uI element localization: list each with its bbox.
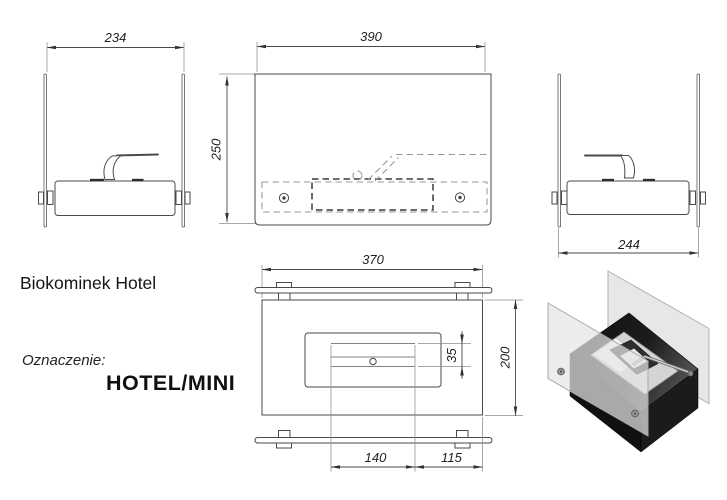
- designation-value: HOTEL/MINI: [106, 371, 235, 396]
- technical-drawing-sheet: 234: [0, 0, 727, 500]
- side-view-right: 244: [552, 74, 706, 258]
- dim-label-opening-width: 140: [365, 450, 387, 465]
- glass-panel-left: [558, 74, 561, 227]
- dim-label-side-left-width: 234: [104, 30, 127, 45]
- top-view: 370: [255, 252, 523, 472]
- dim-label-slot-height: 35: [444, 348, 459, 363]
- dim-slot-height: 35: [418, 332, 471, 379]
- dim-label-top-width: 370: [362, 252, 384, 267]
- burner-body: [55, 180, 175, 216]
- glass-panel-right: [697, 74, 700, 227]
- hidden-lever-outline: [353, 155, 490, 182]
- dim-label-front-height: 250: [209, 138, 224, 161]
- hidden-burner-outline: [262, 179, 487, 212]
- glass-panel-left: [44, 74, 47, 227]
- glass-shelf-bottom: [255, 431, 492, 449]
- dim-label-opening-to-edge: 115: [441, 450, 462, 465]
- front-view: 390 250: [209, 29, 492, 225]
- dim-label-top-depth: 200: [498, 346, 513, 369]
- mounting-screw-left: [279, 193, 288, 202]
- product-3d-render: [548, 271, 709, 452]
- mounting-screw-right: [455, 193, 464, 202]
- drawing-canvas: 234: [0, 0, 727, 500]
- glass-shelf-top: [255, 283, 492, 301]
- dim-front-height: 250: [209, 74, 257, 224]
- side-view-left: 234: [39, 30, 191, 227]
- dim-label-side-right-width: 244: [617, 237, 640, 252]
- control-lever: [104, 155, 158, 180]
- dim-label-front-width: 390: [360, 29, 382, 44]
- control-lever: [585, 156, 635, 179]
- designation-label: Oznaczenie:: [22, 352, 105, 369]
- dim-top-depth: 200: [485, 300, 524, 416]
- glass-front-panel: [255, 74, 491, 225]
- burner-body: [567, 180, 689, 215]
- product-title: Biokominek Hotel: [20, 273, 156, 294]
- dim-side-left-width: 234: [47, 30, 184, 72]
- dim-front-width: 390: [257, 29, 485, 72]
- glass-panel-right: [182, 74, 185, 227]
- dim-side-right-width: 244: [559, 228, 699, 258]
- dim-opening-offsets: 140 115: [331, 345, 483, 472]
